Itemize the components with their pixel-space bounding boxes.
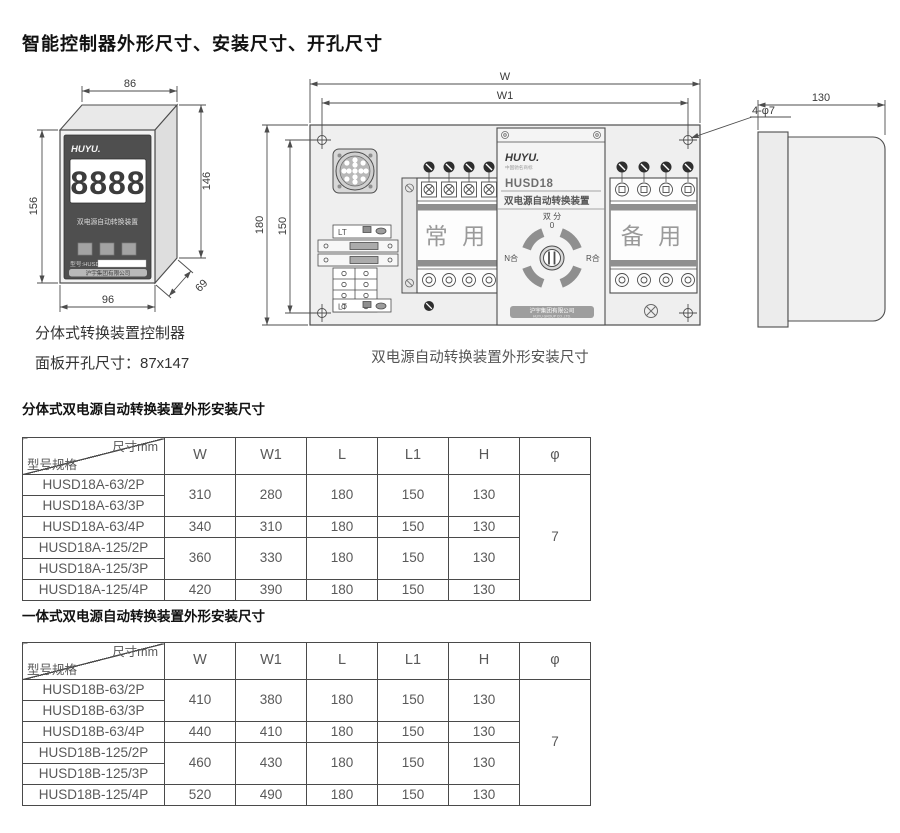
controller-panel — [64, 135, 151, 279]
table1-col-l: L — [307, 438, 378, 475]
value-cell: 150 — [378, 475, 449, 517]
table-row: HUSD18A-125/2P 360 330 180 150 130 — [23, 538, 591, 559]
table-row: HUSD18A-63/4P 340 310 180 150 130 — [23, 517, 591, 538]
table2-corner-bottom: 型号规格 — [27, 664, 77, 677]
table2-corner-top: 尺寸mm — [112, 646, 158, 659]
value-cell: 150 — [378, 785, 449, 806]
dim-w1: W1 — [497, 90, 514, 102]
table2-corner-cell: 尺寸mm 型号规格 — [23, 643, 165, 680]
table-row: HUSD18A-63/2P 310 280 180 150 130 7 — [23, 475, 591, 496]
ats-figure: W W1 180 150 4-φ7 — [255, 70, 900, 340]
ats-company-text: 沪宇集团有限公司 — [530, 307, 575, 315]
model-cell: HUSD18A-63/2P — [23, 475, 165, 496]
controller-buttons — [78, 243, 136, 255]
table2-col-phi: φ — [520, 643, 591, 680]
holes-callout: 4-φ7 — [752, 105, 775, 117]
model-cell: HUSD18A-125/4P — [23, 580, 165, 601]
value-cell: 310 — [236, 517, 307, 538]
value-cell: 130 — [449, 722, 520, 743]
value-cell: 440 — [165, 722, 236, 743]
switch-label-zero: 0 — [550, 221, 555, 230]
value-cell: 390 — [236, 580, 307, 601]
table1-corner-cell: 尺寸mm 型号规格 — [23, 438, 165, 475]
model-cell: HUSD18A-125/2P — [23, 538, 165, 559]
dim-86: 86 — [124, 78, 136, 90]
controller-brand-logo: HUYU. — [71, 144, 101, 155]
dim-180: 180 — [255, 216, 266, 234]
lt-label-bottom: LT — [338, 303, 347, 312]
dim-150: 150 — [277, 217, 289, 235]
switch-label-n: N合 — [504, 253, 518, 263]
section1-heading: 分体式双电源自动转换装置外形安装尺寸 — [22, 398, 265, 418]
value-cell: 180 — [307, 743, 378, 785]
controller-caption: 分体式转换装置控制器 — [35, 322, 185, 343]
controller-company-text: 沪宇集团有限公司 — [86, 269, 131, 277]
table-row: HUSD18B-125/4P 520 490 180 150 130 — [23, 785, 591, 806]
value-cell: 430 — [236, 743, 307, 785]
value-cell: 130 — [449, 475, 520, 517]
value-cell: 150 — [378, 517, 449, 538]
panel-cutout-note: 面板开孔尺寸：87x147 — [35, 352, 189, 373]
backup-breaker-label: 备 用 — [621, 223, 685, 249]
ats-brand-logo: HUYU. — [505, 152, 539, 164]
value-cell: 150 — [378, 580, 449, 601]
value-cell: 150 — [378, 680, 449, 722]
value-cell: 150 — [378, 743, 449, 785]
model-cell: HUSD18B-63/3P — [23, 701, 165, 722]
table1-corner-top: 尺寸mm — [112, 441, 158, 454]
table1-corner-bottom: 型号规格 — [27, 459, 77, 472]
round-connector — [333, 149, 377, 193]
value-cell: 150 — [378, 538, 449, 580]
table2-col-w1: W1 — [236, 643, 307, 680]
value-cell: 310 — [165, 475, 236, 517]
value-cell: 180 — [307, 722, 378, 743]
model-cell: HUSD18A-63/4P — [23, 517, 165, 538]
value-cell: 130 — [449, 538, 520, 580]
value-cell: 280 — [236, 475, 307, 517]
controller-model-blank — [98, 260, 146, 267]
value-cell: 180 — [307, 517, 378, 538]
table1-col-phi: φ — [520, 438, 591, 475]
ats-caption: 双电源自动转换装置外形安装尺寸 — [255, 346, 705, 367]
value-cell: 180 — [307, 538, 378, 580]
value-cell: 130 — [449, 580, 520, 601]
value-cell: 130 — [449, 517, 520, 538]
ats-brand-subtext: 中国驰名商标 — [505, 164, 533, 171]
ats-company-en: HUYU GROUP CO.,LTD. — [533, 314, 571, 318]
table-row: HUSD18A-125/4P 420 390 180 150 130 — [23, 580, 591, 601]
value-cell: 520 — [165, 785, 236, 806]
value-cell: 340 — [165, 517, 236, 538]
controller-model-label: 型号:HUSD — [70, 260, 100, 268]
value-cell: 490 — [236, 785, 307, 806]
value-cell: 460 — [165, 743, 236, 785]
value-cell: 410 — [236, 722, 307, 743]
value-cell: 130 — [449, 680, 520, 722]
table-row: HUSD18B-125/2P 460 430 180 150 130 — [23, 743, 591, 764]
value-cell: 410 — [165, 680, 236, 722]
table-row: HUSD18B-63/2P 410 380 180 150 130 7 — [23, 680, 591, 701]
dim-156: 156 — [28, 197, 40, 215]
dim-146: 146 — [201, 172, 213, 190]
table2-col-w: W — [165, 643, 236, 680]
table2-col-h: H — [449, 643, 520, 680]
model-cell: HUSD18B-63/4P — [23, 722, 165, 743]
value-cell: 360 — [165, 538, 236, 580]
page-title: 智能控制器外形尺寸、安装尺寸、开孔尺寸 — [22, 30, 383, 56]
lt-label-top: LT — [338, 228, 347, 237]
phi-cell: 7 — [520, 680, 591, 806]
dim-96: 96 — [102, 294, 114, 306]
section2-heading: 一体式双电源自动转换装置外形安装尺寸 — [22, 605, 265, 625]
value-cell: 180 — [307, 475, 378, 517]
switch-label-top: 双 分 — [543, 212, 561, 221]
dim-130: 130 — [812, 92, 830, 104]
controller-device-label: 双电源自动转换装置 — [77, 217, 138, 226]
phi-cell: 7 — [520, 475, 591, 601]
controller-display-digits: 8888 — [70, 165, 145, 201]
integrated-type-dimension-table: 尺寸mm 型号规格 W W1 L L1 H φ HUSD18B-63/2P 41… — [22, 642, 591, 806]
split-type-dimension-table: 尺寸mm 型号规格 W W1 L L1 H φ HUSD18A-63/2P 31… — [22, 437, 591, 601]
ats-device-name: 双电源自动转换装置 — [503, 195, 590, 207]
value-cell: 130 — [449, 785, 520, 806]
model-cell: HUSD18B-125/3P — [23, 764, 165, 785]
value-cell: 420 — [165, 580, 236, 601]
model-cell: HUSD18A-125/3P — [23, 559, 165, 580]
table2-col-l: L — [307, 643, 378, 680]
model-cell: HUSD18A-63/3P — [23, 496, 165, 517]
normal-breaker-label: 常 用 — [425, 223, 489, 249]
dim-w: W — [500, 71, 511, 83]
model-cell: HUSD18B-125/2P — [23, 743, 165, 764]
value-cell: 180 — [307, 680, 378, 722]
table1-col-w1: W1 — [236, 438, 307, 475]
dim-69: 69 — [193, 277, 210, 294]
value-cell: 330 — [236, 538, 307, 580]
value-cell: 180 — [307, 580, 378, 601]
model-cell: HUSD18B-125/4P — [23, 785, 165, 806]
table-row: HUSD18B-63/4P 440 410 180 150 130 — [23, 722, 591, 743]
table1-col-h: H — [449, 438, 520, 475]
switch-label-r: R合 — [586, 253, 600, 263]
controller-side-face — [155, 105, 177, 283]
table2-col-l1: L1 — [378, 643, 449, 680]
table1-col-l1: L1 — [378, 438, 449, 475]
value-cell: 130 — [449, 743, 520, 785]
value-cell: 150 — [378, 722, 449, 743]
value-cell: 180 — [307, 785, 378, 806]
value-cell: 380 — [236, 680, 307, 722]
ats-side-view — [758, 132, 885, 327]
model-cell: HUSD18B-63/2P — [23, 680, 165, 701]
ats-model: HUSD18 — [505, 178, 553, 190]
table1-col-w: W — [165, 438, 236, 475]
